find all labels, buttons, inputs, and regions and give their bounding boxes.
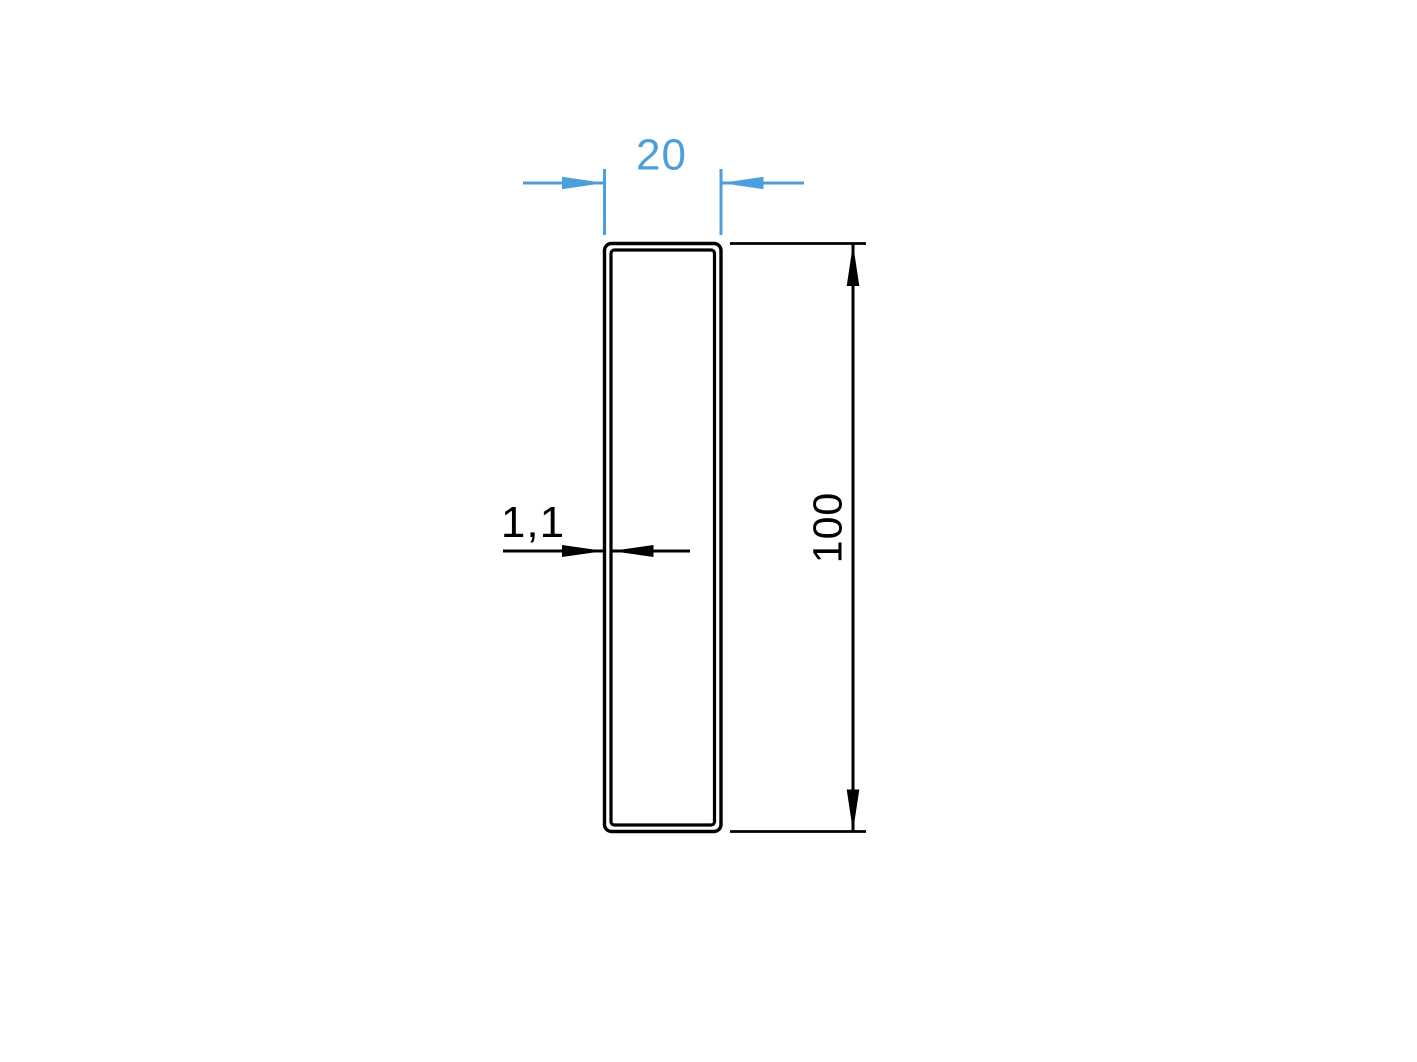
tube-outer-contour xyxy=(605,244,722,832)
height-arrowhead-bottom xyxy=(847,790,860,832)
wall-thickness-value: 1,1 xyxy=(501,498,565,547)
technical-drawing: 20 100 1,1 xyxy=(0,0,1417,1062)
tube-inner-contour xyxy=(611,250,715,825)
height-dimension-value: 100 xyxy=(805,492,851,563)
height-dimension: 100 xyxy=(730,244,866,832)
height-arrowhead-top xyxy=(847,244,860,286)
wall-arrowhead-left xyxy=(562,545,604,557)
width-arrowhead-right xyxy=(721,177,764,189)
wall-arrowhead-right xyxy=(612,545,654,557)
width-arrowhead-left xyxy=(562,177,605,189)
width-dimension-value: 20 xyxy=(636,131,687,180)
width-dimension: 20 xyxy=(523,131,804,236)
wall-thickness-dimension: 1,1 xyxy=(501,498,690,557)
drawing-canvas: 20 100 1,1 xyxy=(0,0,1417,1062)
tube-profile xyxy=(605,244,722,832)
